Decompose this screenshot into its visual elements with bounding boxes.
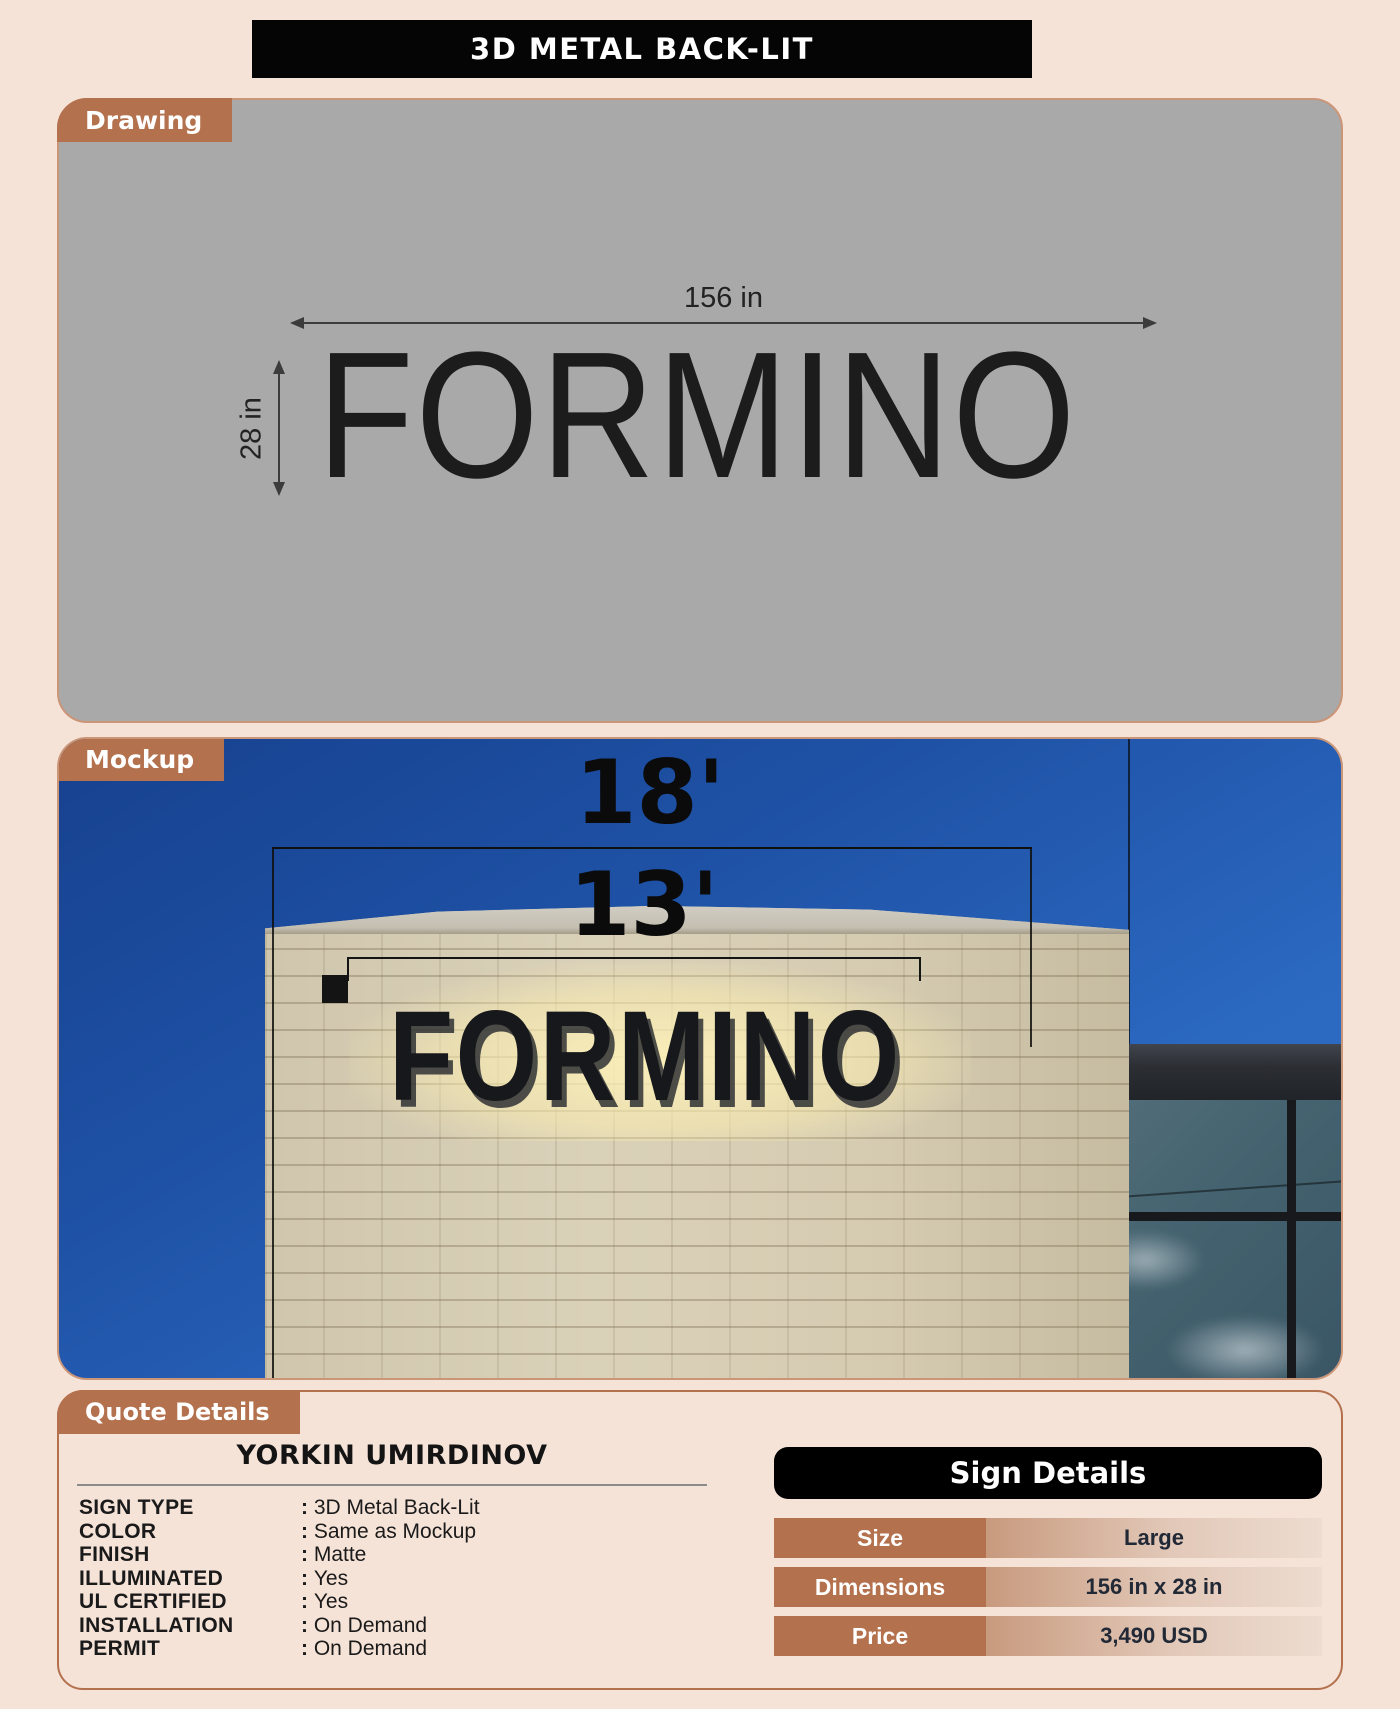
page-title: 3D METAL BACK-LIT (252, 20, 1032, 78)
sign-details-row-price: Price 3,490 USD (774, 1616, 1322, 1656)
cloud-reflection (1165, 1315, 1325, 1380)
quote-fields: SIGN TYPE3D Metal Back-Lit COLORSame as … (79, 1496, 724, 1661)
field-value: 3D Metal Back-Lit (301, 1496, 724, 1520)
sign-details-label: Dimensions (774, 1567, 986, 1607)
mockup-tab: Mockup (57, 737, 224, 781)
dimension-line-18ft-right (1030, 847, 1032, 1047)
sign-details-value: Large (986, 1518, 1322, 1558)
quote-field-row: SIGN TYPE3D Metal Back-Lit (79, 1496, 724, 1520)
drawing-panel: Drawing 156 in 28 in FORMINO (57, 98, 1343, 723)
divider (77, 1484, 707, 1486)
mockup-building-width-label: 18' (500, 749, 800, 837)
quote-details-tab: Quote Details (57, 1390, 300, 1434)
field-label: UL CERTIFIED (79, 1590, 301, 1614)
quote-field-row: ILLUMINATEDYes (79, 1567, 724, 1591)
field-value: Same as Mockup (301, 1520, 724, 1544)
quote-field-row: COLORSame as Mockup (79, 1520, 724, 1544)
dimension-line-18ft-left (272, 847, 274, 1380)
field-label: FINISH (79, 1543, 301, 1567)
field-label: ILLUMINATED (79, 1567, 301, 1591)
mockup-sign-text: FORMINO (389, 993, 902, 1121)
drawing-height-dimension-label: 28 in (236, 364, 269, 494)
quote-field-row: PERMITOn Demand (79, 1637, 724, 1661)
sign-details-label: Size (774, 1518, 986, 1558)
sign-details-header: Sign Details (774, 1447, 1322, 1499)
sign-details-label: Price (774, 1616, 986, 1656)
field-value: Matte (301, 1543, 724, 1567)
quote-field-row: UL CERTIFIEDYes (79, 1590, 724, 1614)
field-value: On Demand (301, 1637, 724, 1661)
quote-details-panel: Quote Details YORKIN UMIRDINOV SIGN TYPE… (57, 1390, 1343, 1690)
field-value: Yes (301, 1567, 724, 1591)
field-label: INSTALLATION (79, 1614, 301, 1638)
window-mullion (1287, 1100, 1296, 1380)
dimension-line-18ft (272, 847, 1032, 849)
field-label: SIGN TYPE (79, 1496, 301, 1520)
field-value: On Demand (301, 1614, 724, 1638)
quote-field-row: FINISHMatte (79, 1543, 724, 1567)
dimension-line-13ft (347, 957, 921, 981)
drawing-tab: Drawing (57, 98, 232, 142)
field-value: Yes (301, 1590, 724, 1614)
backlit-sign: FORMINO (377, 977, 943, 1123)
mockup-panel: 18' 13' FORMINO Mockup (57, 737, 1343, 1380)
quote-field-row: INSTALLATIONOn Demand (79, 1614, 724, 1638)
mockup-sign-width-label: 13' (494, 861, 794, 949)
drawing-width-dimension-label: 156 in (290, 282, 1157, 315)
customer-name: YORKIN UMIRDINOV (77, 1440, 707, 1471)
sign-details-row-dimensions: Dimensions 156 in x 28 in (774, 1567, 1322, 1607)
field-label: PERMIT (79, 1637, 301, 1661)
sign-details-value: 156 in x 28 in (986, 1567, 1322, 1607)
drawing-sign-text: FORMINO (317, 326, 1077, 506)
field-label: COLOR (79, 1520, 301, 1544)
sign-details-row-size: Size Large (774, 1518, 1322, 1558)
wall-fixture (322, 975, 348, 1003)
drawing-height-dimension-arrow (278, 362, 280, 494)
sign-details-value: 3,490 USD (986, 1616, 1322, 1656)
